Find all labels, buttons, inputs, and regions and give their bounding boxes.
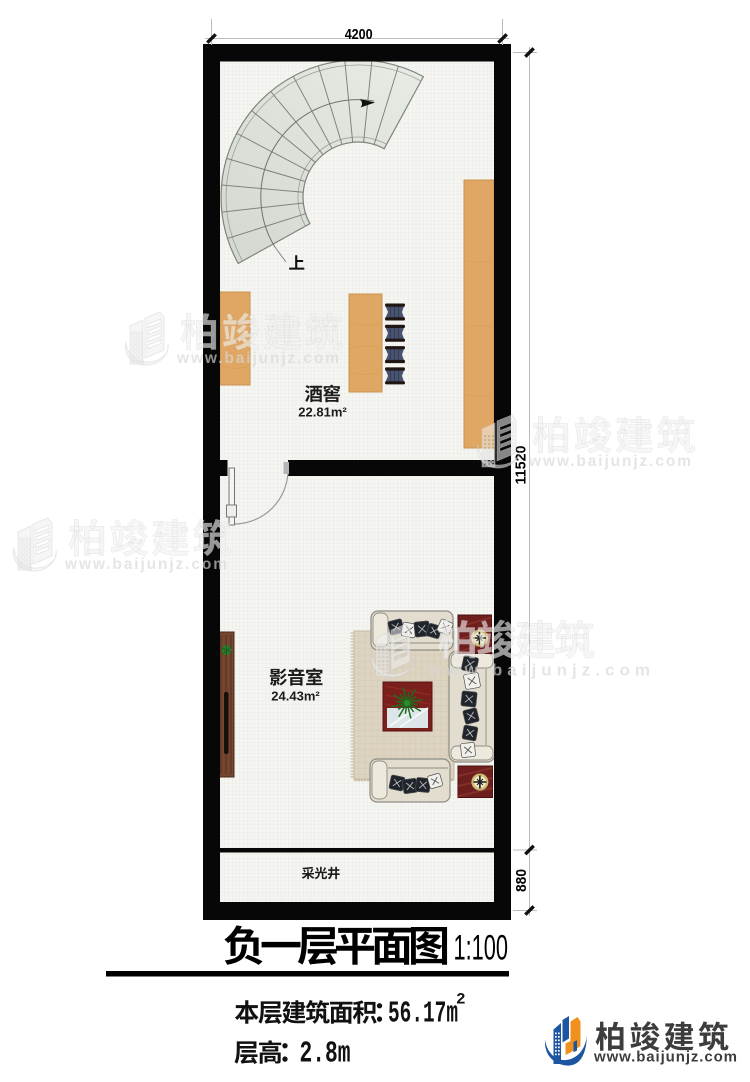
svg-text:2: 2 xyxy=(456,991,466,1009)
svg-text:www.baijunjz.com: www.baijunjz.com xyxy=(593,1049,737,1066)
svg-text:56.17m: 56.17m xyxy=(388,998,458,1032)
svg-text:2.8m: 2.8m xyxy=(300,1038,351,1072)
svg-text:4200: 4200 xyxy=(345,27,373,43)
svg-text:1:100: 1:100 xyxy=(454,929,509,968)
svg-text:880: 880 xyxy=(514,869,530,892)
svg-text:22.81m²: 22.81m² xyxy=(298,405,347,420)
svg-text:24.43m²: 24.43m² xyxy=(271,689,320,704)
